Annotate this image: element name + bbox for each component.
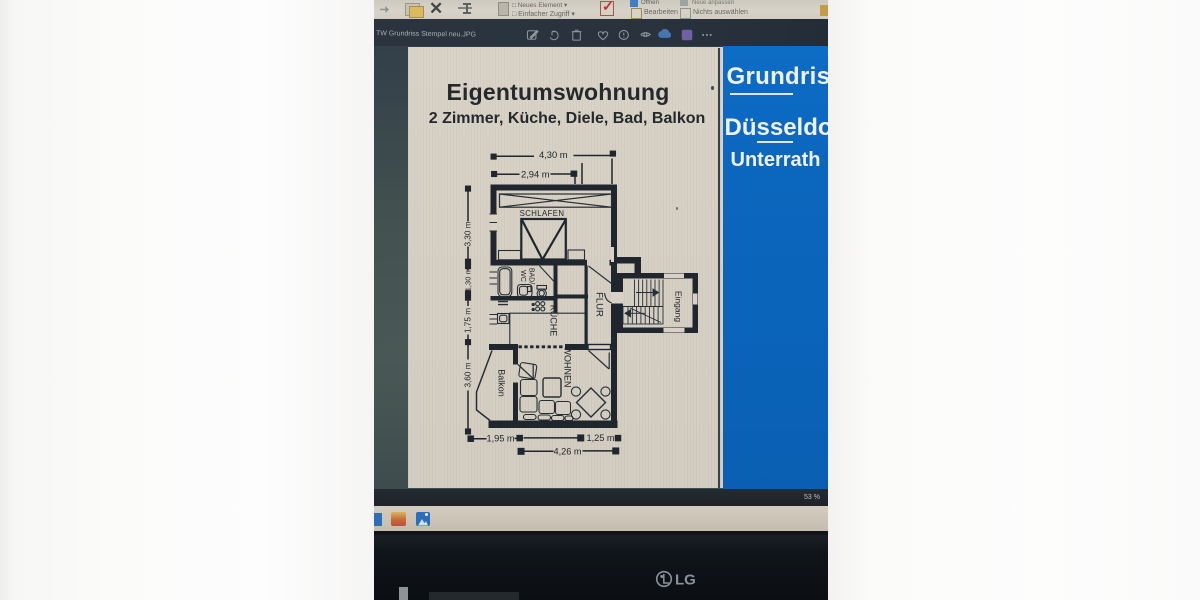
svg-text:3,60 m: 3,60 m: [464, 362, 473, 387]
svg-text:LG: LG: [675, 571, 696, 588]
svg-text:KÜCHE: KÜCHE: [549, 305, 559, 337]
svg-text:2,94 m: 2,94 m: [521, 169, 550, 180]
svg-text:BAD/: BAD/: [528, 268, 535, 284]
svg-text:Eingang: Eingang: [674, 291, 684, 322]
svg-text:4,30 m: 4,30 m: [539, 149, 568, 160]
svg-text:WOHNEN: WOHNEN: [563, 347, 573, 388]
svg-text:FLUR: FLUR: [594, 292, 605, 317]
svg-text:1,75 m: 1,75 m: [464, 308, 473, 333]
svg-text:1,95 m: 1,95 m: [486, 434, 514, 444]
svg-text:1,30 m: 1,30 m: [464, 268, 473, 291]
svg-text:1,25 m: 1,25 m: [586, 433, 614, 443]
svg-text:3,30 m: 3,30 m: [464, 221, 473, 246]
svg-text:SCHLAFEN: SCHLAFEN: [520, 209, 565, 218]
svg-text:WC: WC: [519, 270, 526, 282]
svg-text:4,26 m: 4,26 m: [553, 447, 581, 457]
svg-text:Balkon: Balkon: [497, 369, 507, 397]
